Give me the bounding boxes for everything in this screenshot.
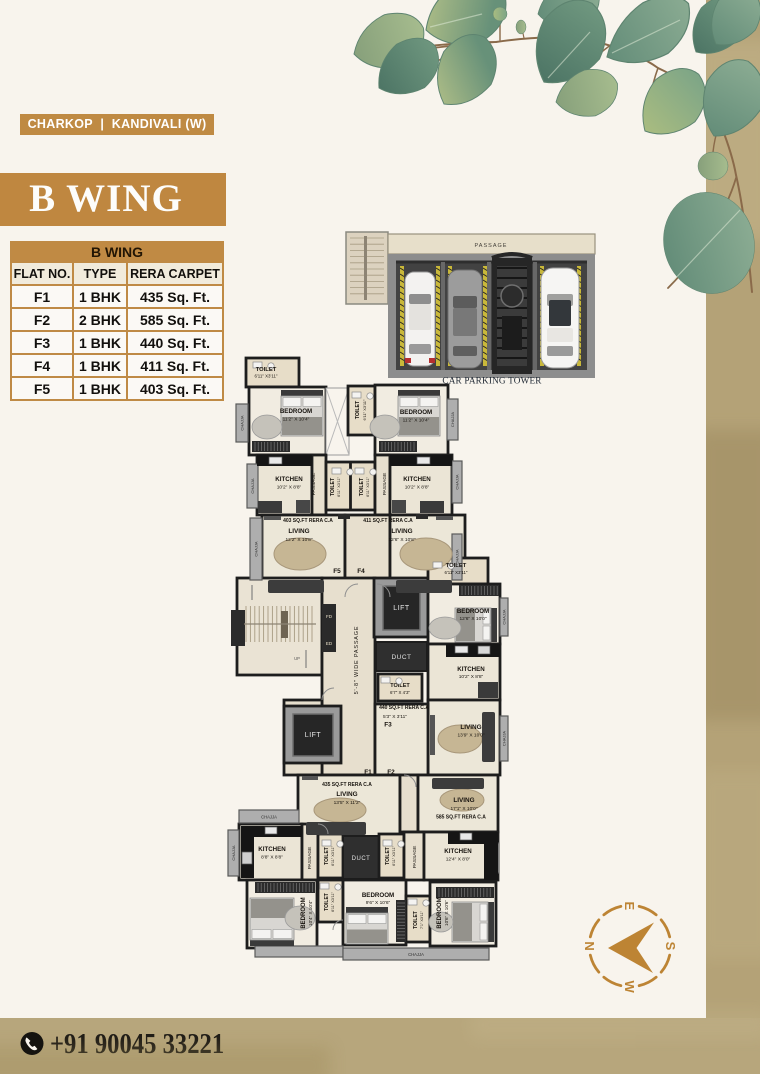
svg-text:F4: F4 — [357, 568, 365, 575]
svg-text:6'11" X3'11": 6'11" X3'11" — [366, 476, 370, 496]
svg-text:BEDROOM: BEDROOM — [280, 408, 312, 415]
svg-text:6'11" X3'11": 6'11" X3'11" — [331, 891, 335, 911]
svg-text:12'2" X 10'8": 12'2" X 10'8" — [285, 537, 312, 543]
svg-text:CHAJJA: CHAJJA — [408, 952, 424, 957]
svg-text:TOILET: TOILET — [324, 847, 330, 865]
svg-text:TOILET: TOILET — [413, 911, 419, 929]
svg-text:ED: ED — [326, 641, 333, 646]
svg-text:13'5" X 11'2": 13'5" X 11'2" — [334, 800, 361, 806]
svg-text:S: S — [663, 942, 678, 951]
svg-text:TOILET: TOILET — [359, 477, 365, 496]
svg-text:TOILET: TOILET — [324, 893, 330, 911]
svg-text:PASSAGE: PASSAGE — [412, 846, 418, 869]
svg-text:PASSAGE: PASSAGE — [307, 847, 313, 870]
svg-text:CHAJJA: CHAJJA — [502, 609, 507, 624]
svg-text:KITCHEN: KITCHEN — [275, 476, 303, 483]
svg-text:KITCHEN: KITCHEN — [258, 846, 286, 853]
svg-text:10'4" X 10'4": 10'4" X 10'4" — [308, 900, 313, 926]
svg-text:10'2" X 8'8": 10'2" X 8'8" — [459, 674, 484, 680]
svg-text:6'11" X3'11": 6'11" X3'11" — [337, 476, 341, 496]
svg-text:KITCHEN: KITCHEN — [403, 476, 431, 483]
svg-text:W: W — [622, 981, 637, 994]
svg-text:LIVING: LIVING — [288, 528, 309, 535]
svg-text:N: N — [582, 941, 597, 950]
svg-text:CHAJJA: CHAJJA — [450, 412, 455, 427]
svg-text:TOILET: TOILET — [385, 847, 391, 865]
svg-text:435 SQ.FT RERA C.A: 435 SQ.FT RERA C.A — [322, 782, 372, 788]
svg-text:CHAJJA: CHAJJA — [261, 815, 277, 820]
svg-text:UP: UP — [294, 656, 300, 661]
svg-text:E: E — [622, 901, 637, 910]
svg-text:CHAJJA: CHAJJA — [502, 731, 507, 746]
svg-text:BEDROOM: BEDROOM — [400, 409, 432, 416]
svg-text:440 SQ.FT RERA C.A: 440 SQ.FT RERA C.A — [379, 705, 429, 711]
svg-text:BEDROOM: BEDROOM — [362, 892, 394, 899]
svg-text:LIFT: LIFT — [305, 732, 322, 739]
svg-text:LIVING: LIVING — [391, 528, 412, 535]
svg-text:17'1" X 10'0": 17'1" X 10'0" — [450, 806, 477, 812]
svg-text:10'2" X 8'8": 10'2" X 8'8" — [277, 485, 302, 491]
svg-text:PASSAGE: PASSAGE — [311, 473, 317, 496]
svg-text:DUCT: DUCT — [352, 856, 371, 862]
svg-text:CHAJJA: CHAJJA — [250, 478, 255, 493]
svg-text:TOILET: TOILET — [256, 367, 277, 373]
svg-text:6'11" X3'11": 6'11" X3'11" — [392, 845, 396, 865]
svg-text:KITCHEN: KITCHEN — [457, 666, 485, 673]
svg-text:12'4" X 8'0": 12'4" X 8'0" — [446, 857, 471, 863]
svg-text:11'2" X 10'4": 11'2" X 10'4" — [403, 418, 430, 424]
svg-text:TOILET: TOILET — [355, 400, 361, 419]
svg-text:12'6" X 10'8": 12'6" X 10'8" — [388, 537, 415, 543]
svg-text:6'11" X3'11": 6'11" X3'11" — [445, 570, 468, 575]
svg-text:LIVING: LIVING — [460, 724, 481, 731]
svg-text:BEDROOM: BEDROOM — [437, 897, 443, 928]
svg-text:F1: F1 — [364, 769, 372, 776]
svg-text:CHAJJA: CHAJJA — [455, 474, 460, 489]
svg-text:CHAJJA: CHAJJA — [254, 541, 259, 556]
svg-text:CHAJJA: CHAJJA — [240, 415, 245, 430]
svg-text:6'11" X3'11": 6'11" X3'11" — [255, 374, 278, 379]
svg-text:BEDROOM: BEDROOM — [457, 608, 489, 615]
svg-text:DUCT: DUCT — [391, 654, 411, 661]
svg-text:F2: F2 — [387, 769, 395, 776]
svg-text:6'7" X 4'3": 6'7" X 4'3" — [390, 690, 410, 695]
svg-text:5'3" X 3'11": 5'3" X 3'11" — [383, 714, 407, 720]
svg-text:10'6" X 10'6": 10'6" X 10'6" — [444, 900, 449, 926]
svg-text:585 SQ.FT RERA C.A: 585 SQ.FT RERA C.A — [436, 815, 486, 821]
svg-text:CAR PARKING TOWER: CAR PARKING TOWER — [442, 376, 542, 386]
svg-text:13'9" X 10'0": 13'9" X 10'0" — [457, 733, 484, 739]
svg-text:LIVING: LIVING — [453, 797, 474, 804]
svg-text:403 SQ.FT RERA C.A: 403 SQ.FT RERA C.A — [283, 518, 333, 524]
svg-text:BEDROOM: BEDROOM — [301, 897, 307, 928]
svg-text:CHAJJA: CHAJJA — [231, 845, 236, 860]
svg-text:12'6" X 10'0": 12'6" X 10'0" — [459, 616, 486, 622]
svg-text:LIVING: LIVING — [336, 791, 357, 798]
svg-text:TOILET: TOILET — [446, 563, 467, 569]
svg-text:F5: F5 — [333, 568, 341, 575]
svg-text:F3: F3 — [384, 722, 392, 729]
svg-text:KITCHEN: KITCHEN — [444, 848, 472, 855]
svg-text:5'-8" WIDE PASSAGE: 5'-8" WIDE PASSAGE — [354, 626, 360, 695]
svg-text:PASSAGE: PASSAGE — [475, 243, 508, 249]
svg-text:411 SQ.FT RERA C.A: 411 SQ.FT RERA C.A — [363, 518, 413, 524]
svg-text:9'6" X 10'6": 9'6" X 10'6" — [366, 900, 391, 906]
svg-text:8'8" X 8'8": 8'8" X 8'8" — [261, 855, 283, 861]
svg-text:LIFT: LIFT — [393, 605, 410, 612]
svg-text:6'11" X3'11": 6'11" X3'11" — [362, 399, 367, 420]
svg-text:10'2" X 8'8": 10'2" X 8'8" — [405, 485, 430, 491]
svg-text:6'11" X3'11": 6'11" X3'11" — [331, 845, 335, 865]
svg-text:7'1" X3'11": 7'1" X3'11" — [420, 910, 424, 929]
svg-text:TOILET: TOILET — [330, 477, 336, 496]
svg-text:PASSAGE: PASSAGE — [382, 473, 388, 496]
svg-text:11'2" X 10'4": 11'2" X 10'4" — [283, 417, 310, 423]
svg-text:FD: FD — [326, 614, 333, 619]
